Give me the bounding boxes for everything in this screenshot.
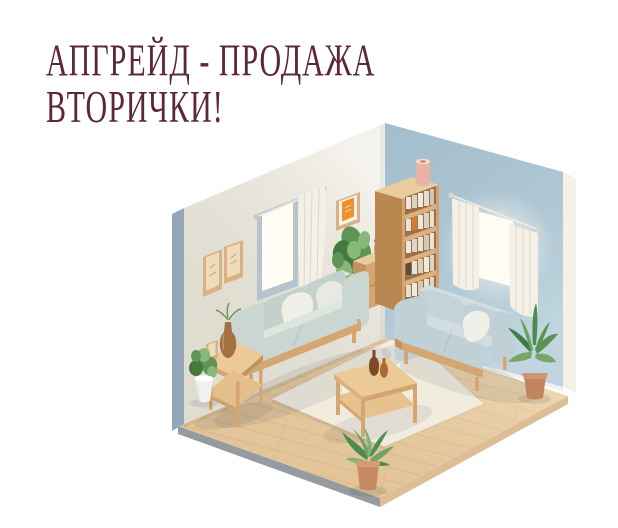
pink-vase (416, 159, 430, 186)
right-wall-edge (563, 172, 576, 393)
front-plant-pot (357, 464, 379, 491)
left-wall-edge (172, 208, 184, 431)
window-right-glass (477, 211, 513, 287)
rod-finial (253, 214, 258, 219)
sofa-left-arm (342, 271, 369, 331)
rod-finial (536, 227, 541, 232)
sofa-right-arm (492, 311, 516, 364)
window-left-glass (262, 202, 293, 291)
rod-finial (448, 192, 453, 197)
palm-pot (524, 376, 546, 400)
curtain-right-window-right-panel (509, 224, 538, 317)
curtain-right-window-left-panel (452, 198, 479, 290)
isometric-room-illustration (0, 0, 618, 528)
poster: АПГРЕЙД - ПРОДАЖА ВТОРИЧКИ! (0, 0, 618, 528)
